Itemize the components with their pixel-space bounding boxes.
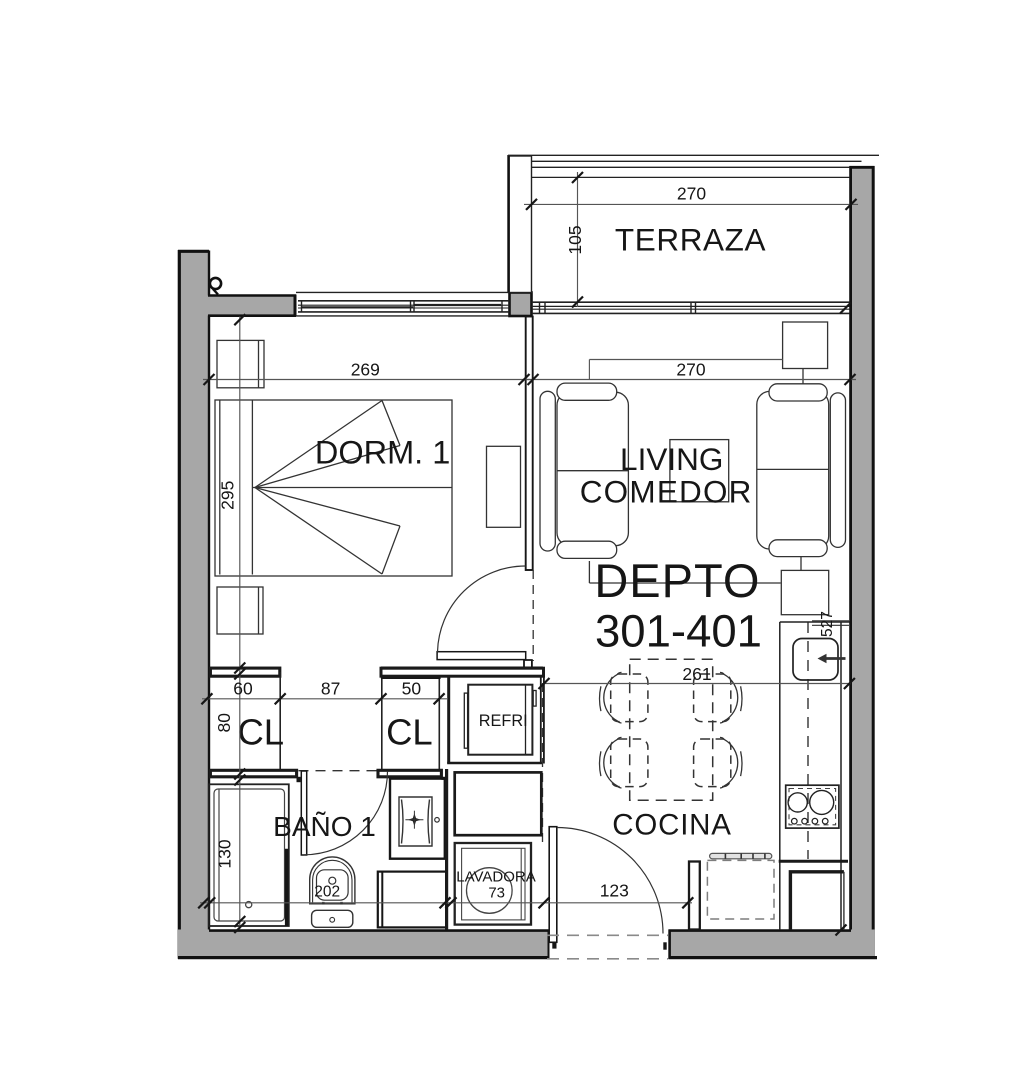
svg-text:DEPTO: DEPTO (594, 554, 760, 607)
svg-text:50: 50 (402, 678, 422, 698)
svg-text:CL: CL (386, 711, 433, 752)
svg-text:BAÑO 1: BAÑO 1 (273, 811, 376, 842)
svg-text:202: 202 (314, 883, 340, 900)
svg-text:270: 270 (676, 360, 705, 380)
svg-text:301-401: 301-401 (595, 606, 762, 657)
svg-text:527: 527 (819, 611, 836, 637)
svg-text:105: 105 (565, 225, 585, 254)
svg-text:73: 73 (488, 885, 505, 902)
svg-text:REFRI: REFRI (479, 712, 528, 730)
svg-text:87: 87 (321, 678, 340, 698)
svg-text:LIVING: LIVING (620, 441, 723, 477)
svg-text:123: 123 (600, 880, 629, 900)
svg-text:130: 130 (214, 839, 234, 868)
svg-text:295: 295 (218, 481, 238, 510)
svg-text:COCINA: COCINA (612, 809, 732, 842)
svg-text:CL: CL (237, 711, 284, 752)
svg-text:TERRAZA: TERRAZA (615, 222, 766, 258)
svg-text:270: 270 (677, 184, 706, 204)
svg-text:261: 261 (682, 664, 711, 684)
svg-text:LAVADORA: LAVADORA (456, 869, 535, 886)
svg-text:269: 269 (351, 360, 380, 380)
svg-text:DORM. 1: DORM. 1 (315, 435, 450, 471)
svg-text:80: 80 (214, 713, 234, 733)
svg-text:60: 60 (233, 679, 253, 699)
svg-text:COMEDOR: COMEDOR (580, 474, 753, 510)
